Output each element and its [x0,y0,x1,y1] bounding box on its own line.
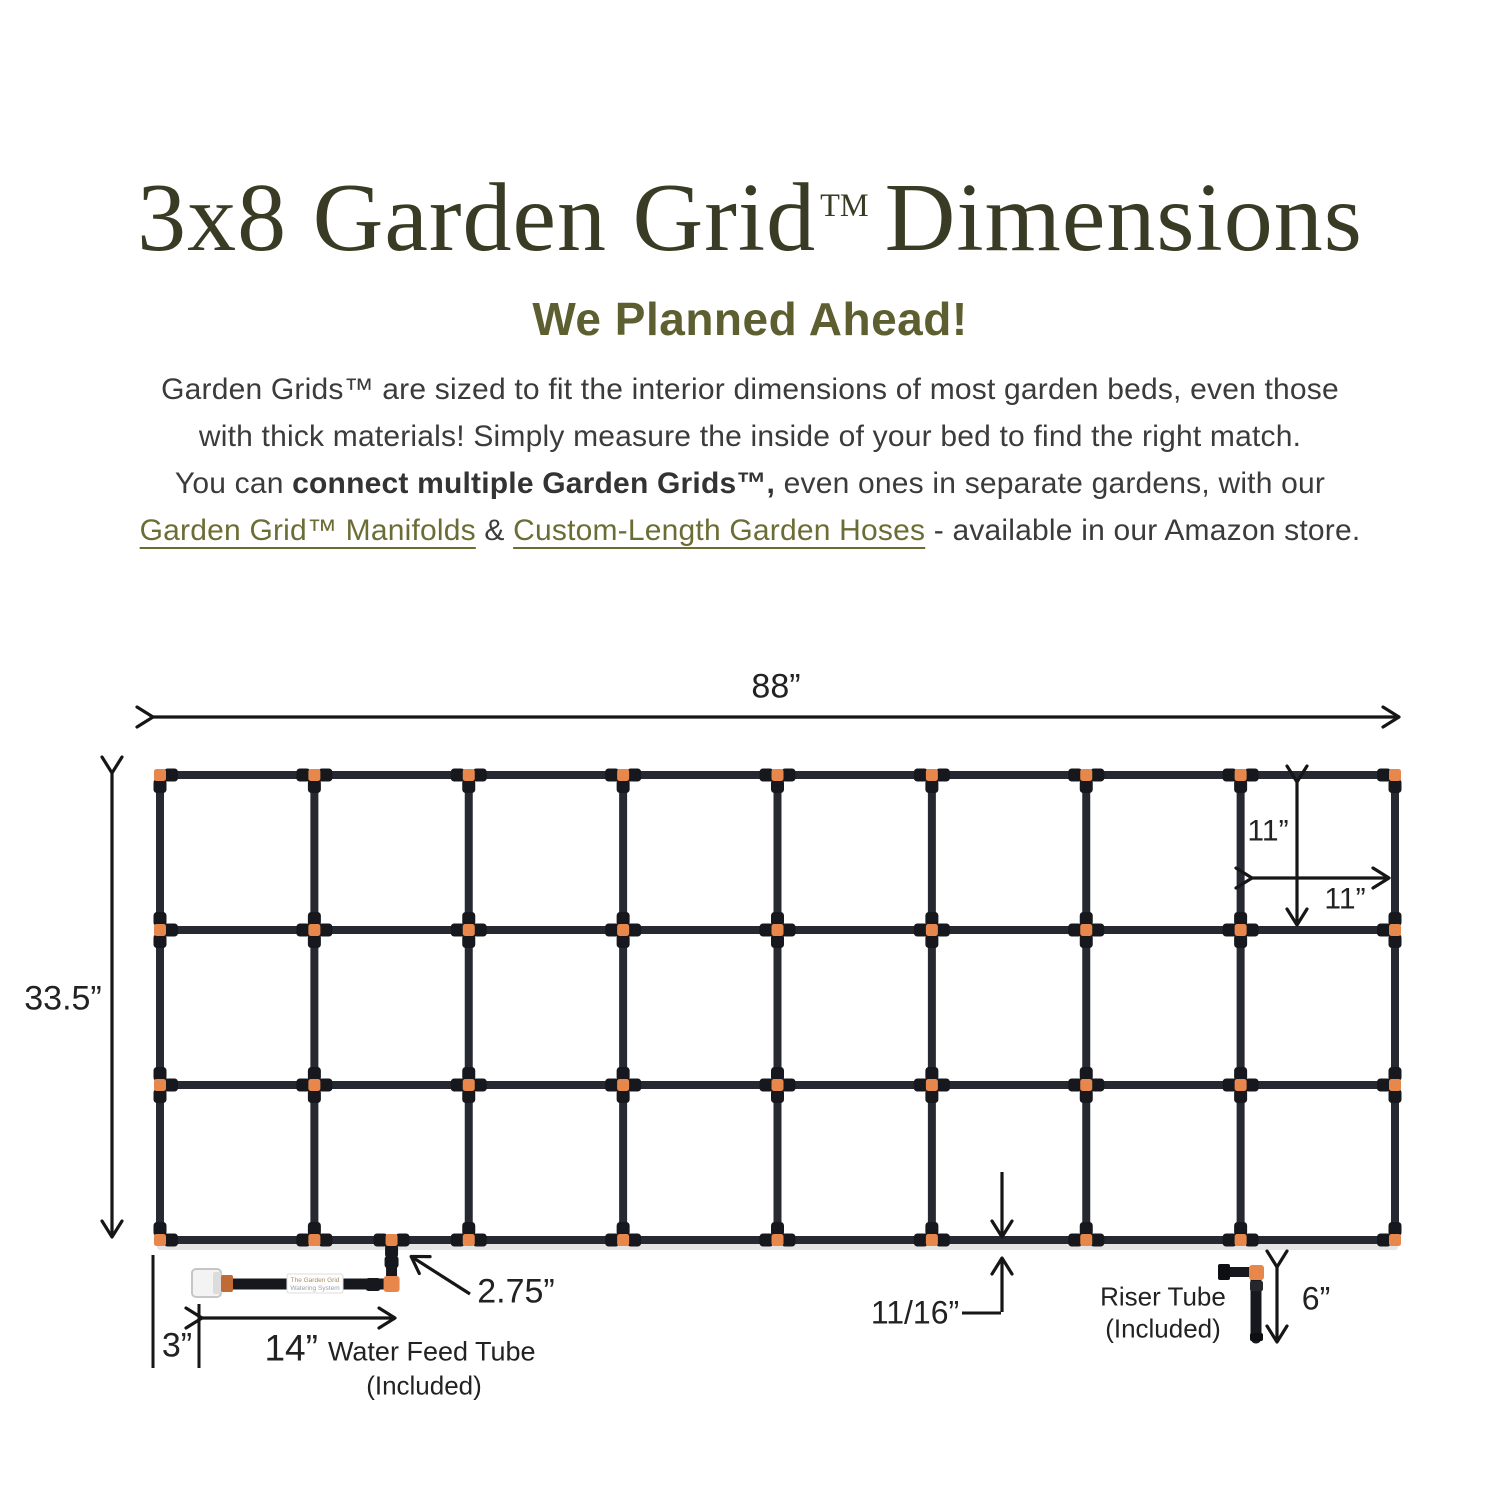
cell-width-dimension-label: 11” [1324,883,1365,916]
feed-name-text: Water Feed Tube [328,1337,536,1367]
width-dimension-label: 88” [751,668,800,705]
riser-tube-label: Riser Tube [1100,1283,1226,1312]
water-feed-tube-label: 14”Water Feed Tube [264,1329,535,1370]
height-dimension-label: 33.5” [24,980,102,1017]
feed-length-value: 14” [264,1328,317,1369]
elbow-dimension-label: 2.75” [477,1273,555,1310]
svg-text:The Garden Grid: The Garden Grid [291,1277,340,1284]
riser-length-label: 6” [1302,1281,1330,1316]
garden-grid-dimensions-infographic: 3x8 Garden GridTMDimensions We Planned A… [0,0,1500,1500]
svg-text:Watering System: Watering System [290,1285,339,1292]
garden-grid-diagram: The Garden GridWatering System [0,0,1500,1500]
cap-dimension-label: 3” [162,1327,192,1364]
cell-height-dimension-label: 11” [1247,815,1288,848]
pipe-diameter-label: 11/16” [871,1295,959,1330]
riser-included-label: (Included) [1105,1315,1221,1344]
feed-included-label: (Included) [366,1372,482,1401]
